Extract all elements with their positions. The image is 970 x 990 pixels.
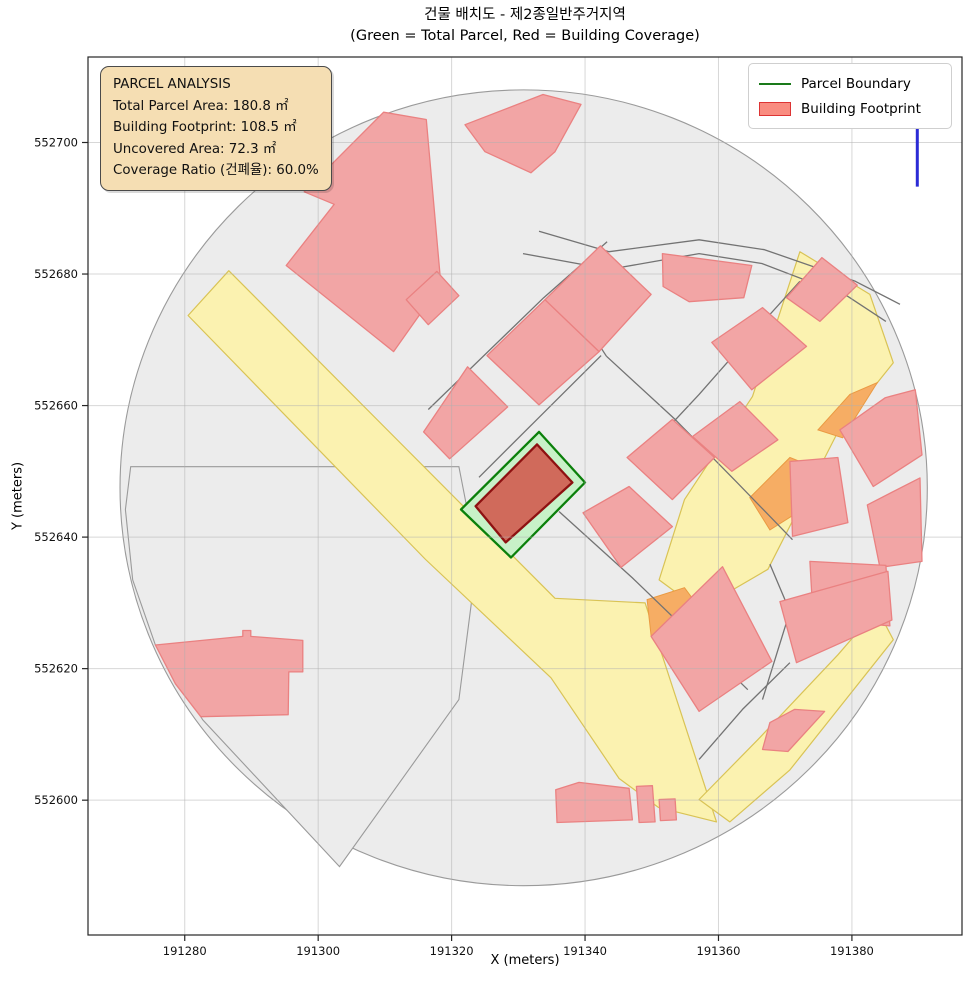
legend-row-building-footprint: Building Footprint <box>759 96 941 121</box>
figure-building-layout-map: N191280191300191320191340191360191380552… <box>0 0 970 990</box>
legend-label-building-footprint: Building Footprint <box>801 101 921 117</box>
x-tick-label: 191380 <box>830 944 874 958</box>
chart-title-line1: 건물 배치도 - 제2종일반주거지역 <box>88 5 962 26</box>
parcel-boundary-line-swatch <box>759 83 791 85</box>
building-footprint-patch-swatch <box>759 102 791 116</box>
building-footprint-20 <box>636 786 655 823</box>
y-tick-label: 552620 <box>34 662 78 676</box>
legend-label-parcel-boundary: Parcel Boundary <box>801 76 911 92</box>
y-tick-label: 552680 <box>34 267 78 281</box>
building-footprint-13 <box>790 458 848 537</box>
chart-title: 건물 배치도 - 제2종일반주거지역 (Green = Total Parcel… <box>88 5 962 47</box>
y-tick-label: 552660 <box>34 399 78 413</box>
building-footprint-22 <box>155 631 302 717</box>
y-tick-label: 552640 <box>34 530 78 544</box>
building-footprint-21 <box>659 799 676 821</box>
x-axis-label: X (meters) <box>490 953 559 968</box>
x-tick-label: 191340 <box>563 944 607 958</box>
building-footprint-19 <box>556 782 633 822</box>
y-tick-label: 552600 <box>34 793 78 807</box>
x-tick-label: 191280 <box>163 944 207 958</box>
analysis-total-parcel-area: Total Parcel Area: 180.8 ㎡ <box>113 96 319 118</box>
analysis-building-footprint: Building Footprint: 108.5 ㎡ <box>113 117 319 139</box>
x-tick-label: 191300 <box>296 944 340 958</box>
legend-row-parcel-boundary: Parcel Boundary <box>759 71 941 96</box>
analysis-coverage-ratio: Coverage Ratio (건폐율): 60.0% <box>113 160 319 182</box>
x-tick-label: 191360 <box>697 944 741 958</box>
analysis-title: PARCEL ANALYSIS <box>113 74 319 96</box>
x-tick-label: 191320 <box>430 944 474 958</box>
y-tick-label: 552700 <box>34 135 78 149</box>
parcel-analysis-box: PARCEL ANALYSIS Total Parcel Area: 180.8… <box>100 66 332 191</box>
analysis-uncovered-area: Uncovered Area: 72.3 ㎡ <box>113 139 319 161</box>
y-axis-label: Y (meters) <box>11 462 26 530</box>
legend: Parcel Boundary Building Footprint <box>748 63 952 129</box>
chart-title-line2: (Green = Total Parcel, Red = Building Co… <box>88 26 962 47</box>
